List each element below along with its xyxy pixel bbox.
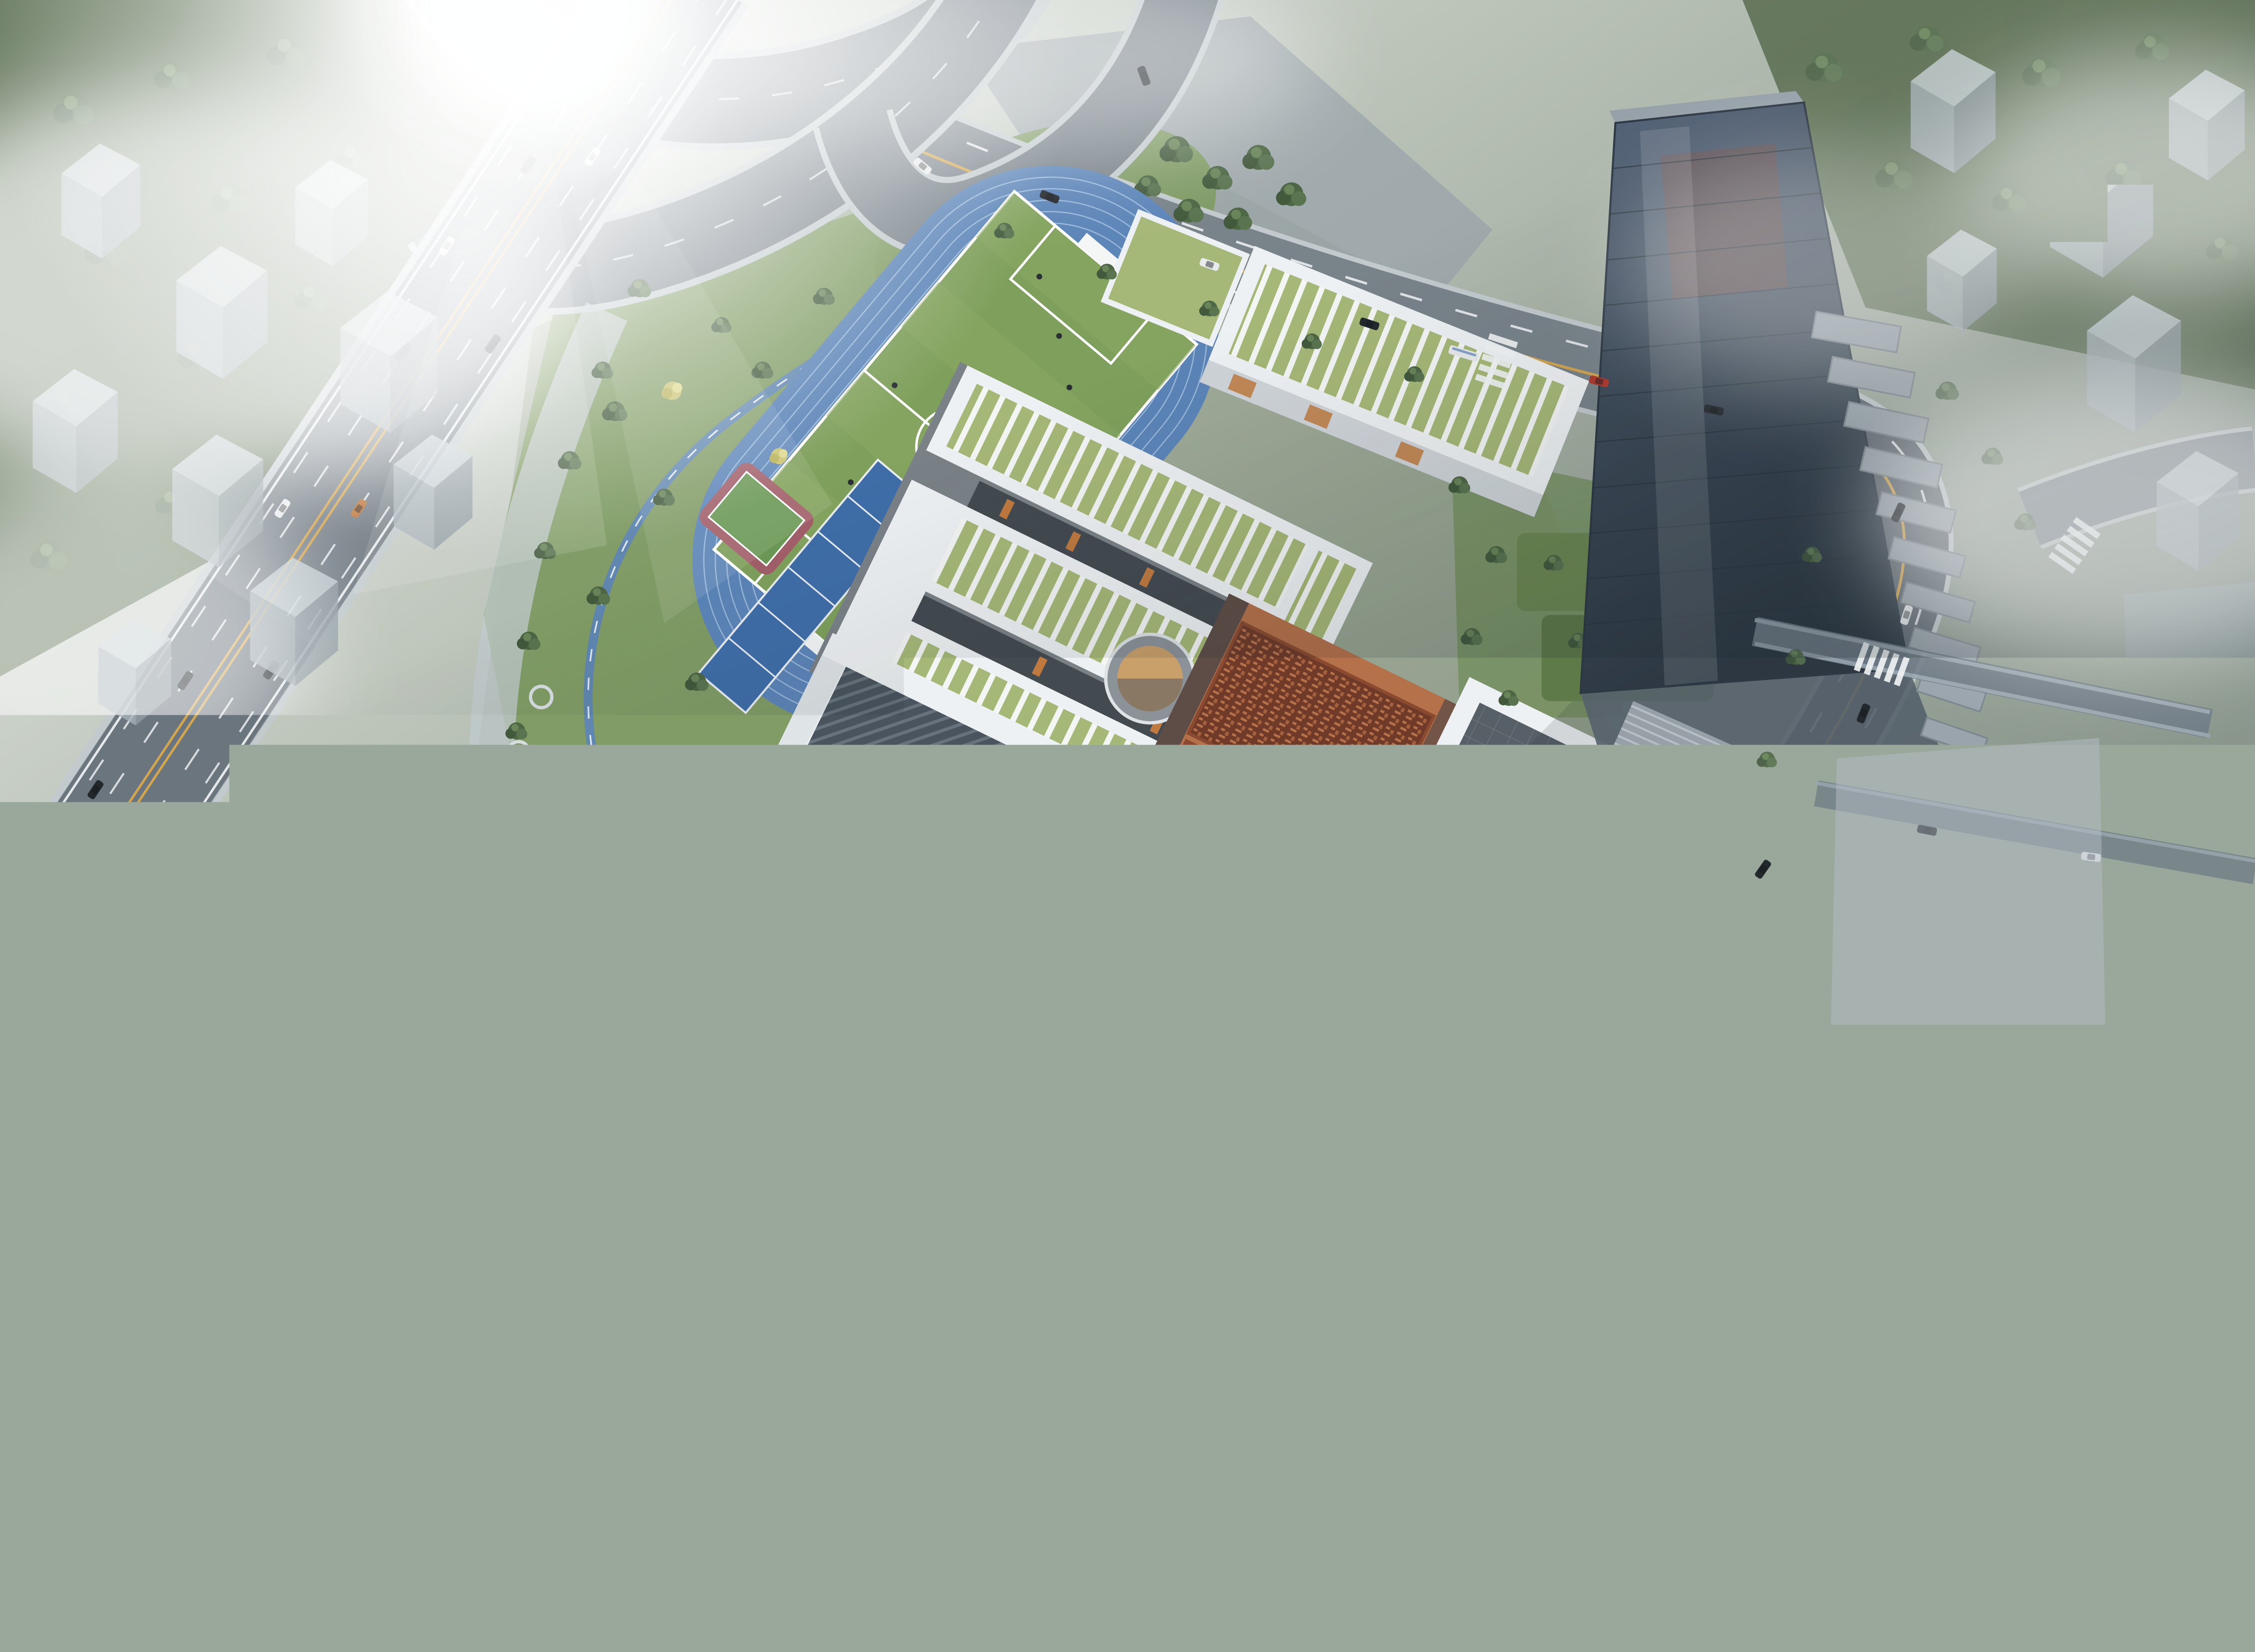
aerial-campus-rendering	[0, 0, 2255, 1502]
